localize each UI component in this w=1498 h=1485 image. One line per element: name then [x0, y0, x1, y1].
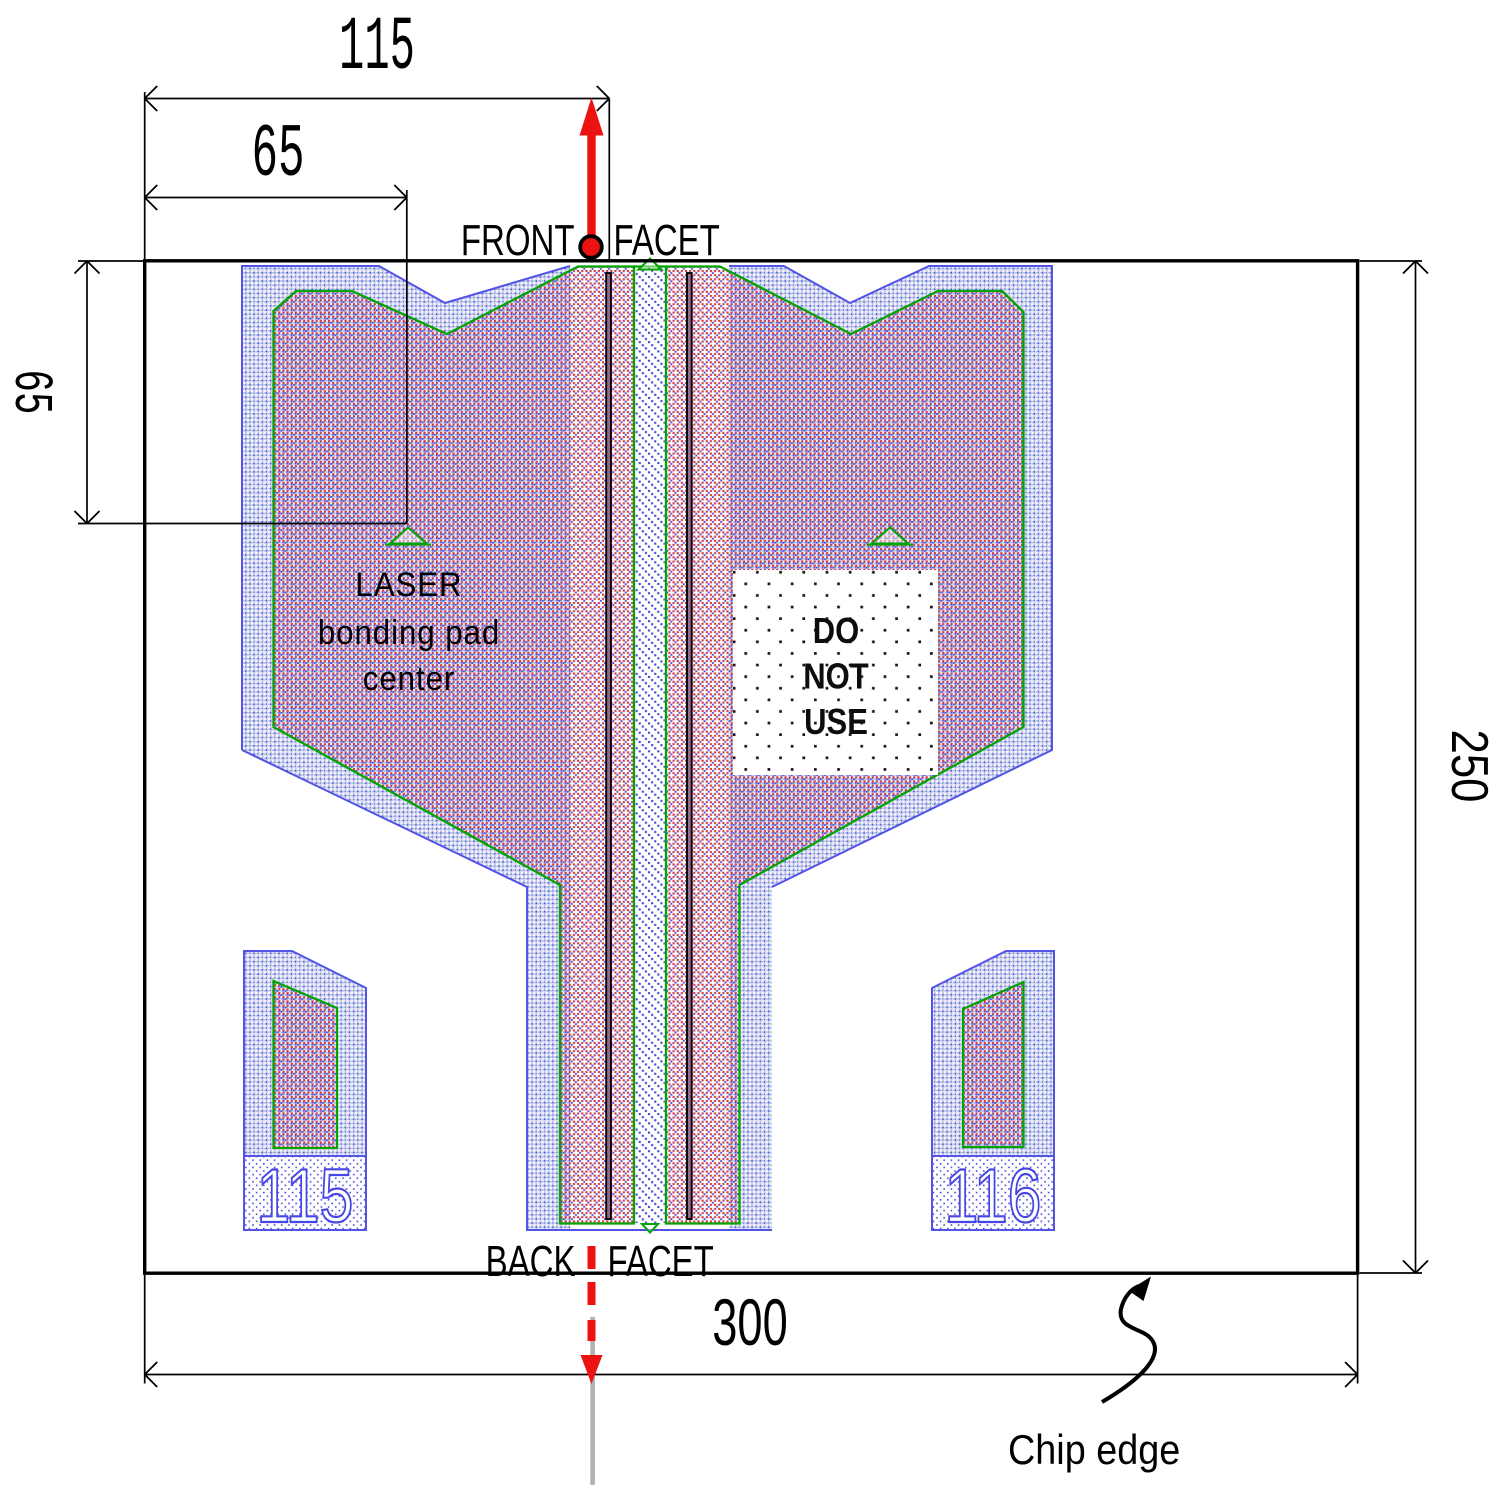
svg-text:DO: DO	[813, 611, 860, 652]
svg-text:250: 250	[1440, 730, 1497, 803]
svg-text:LASER: LASER	[355, 565, 462, 604]
svg-text:FACET: FACET	[608, 1238, 714, 1287]
svg-text:USE: USE	[804, 702, 868, 743]
svg-text:Chip edge: Chip edge	[1008, 1427, 1180, 1473]
svg-text:115: 115	[257, 1154, 354, 1239]
svg-text:65: 65	[0, 370, 60, 415]
svg-text:115: 115	[339, 6, 415, 91]
svg-text:FRONT: FRONT	[461, 217, 575, 266]
svg-text:FACET: FACET	[614, 217, 720, 266]
svg-text:bonding pad: bonding pad	[318, 613, 500, 652]
svg-text:BACK: BACK	[486, 1238, 576, 1287]
svg-text:center: center	[363, 659, 455, 698]
svg-text:300: 300	[712, 1285, 787, 1359]
svg-text:NOT: NOT	[803, 656, 869, 697]
svg-text:116: 116	[945, 1154, 1042, 1239]
svg-text:65: 65	[251, 114, 304, 198]
